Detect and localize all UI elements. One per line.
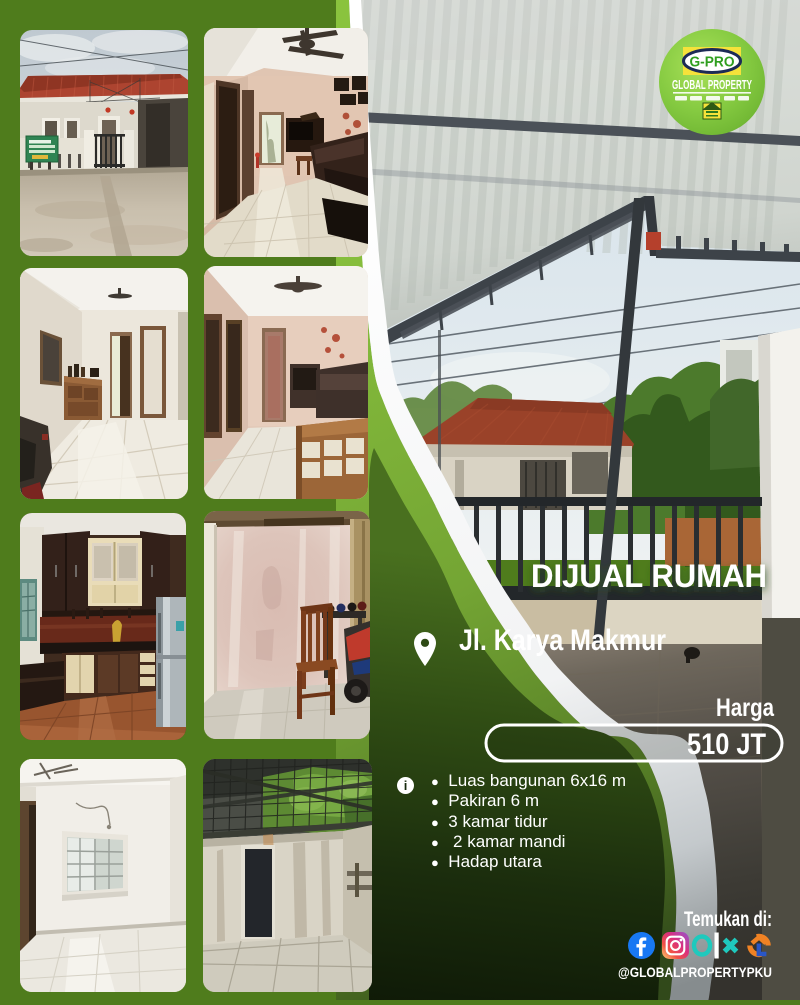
svg-text:GLOBAL PROPERTY: GLOBAL PROPERTY (672, 78, 752, 92)
svg-text:G-PRO: G-PRO (690, 55, 735, 71)
